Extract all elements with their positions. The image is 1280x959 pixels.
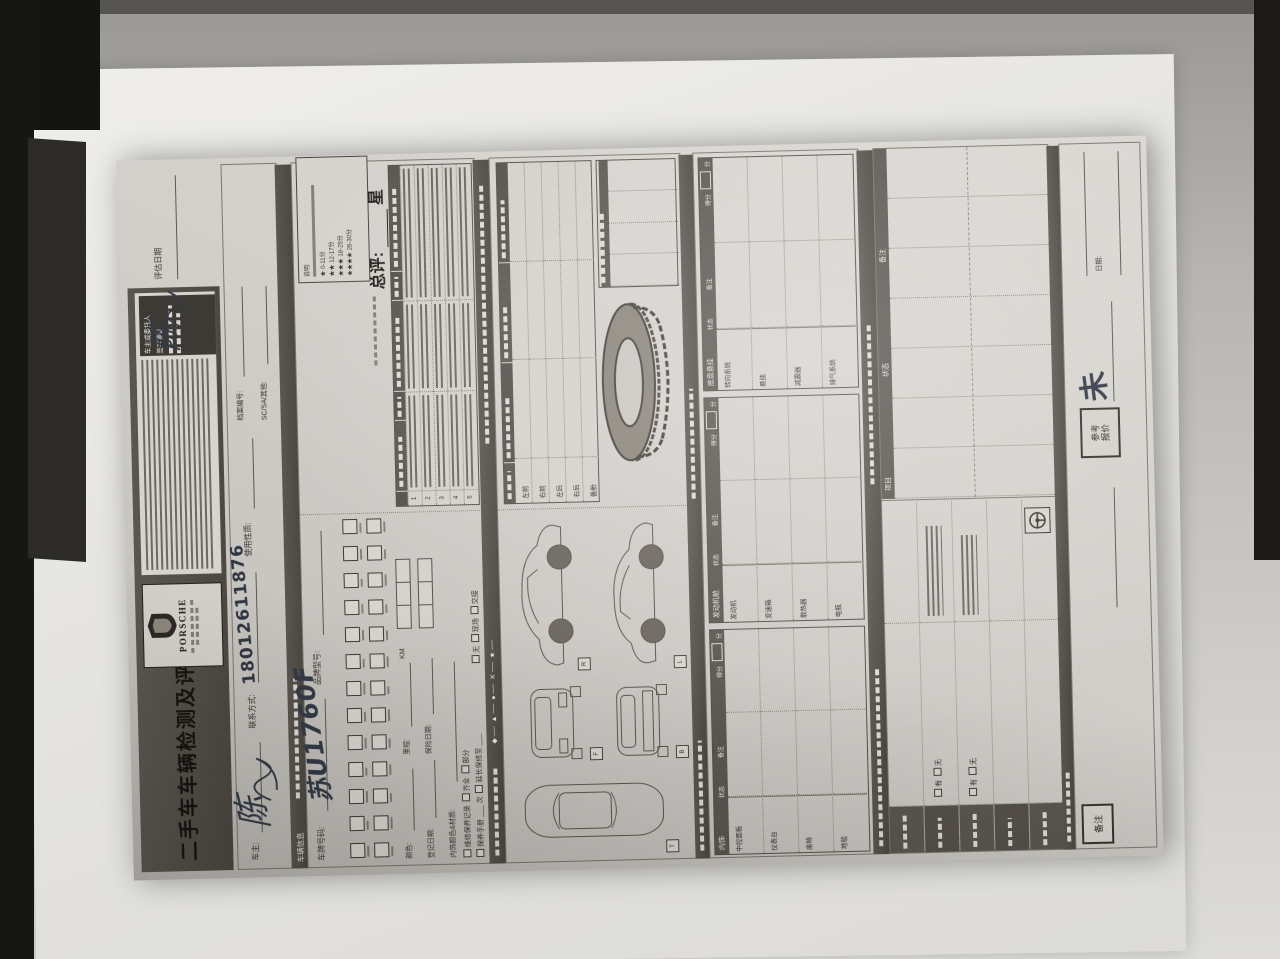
mechanical-block: 内饰 状态 备注 得分 分 中控面板 仪表台 座椅 地毯 发动机舱 状态 备注 bbox=[692, 149, 875, 859]
view-tag-f: F bbox=[590, 747, 603, 760]
car-top-view[interactable] bbox=[519, 772, 671, 848]
header-band: 二手车车辆检测及评估表 PORSCHE 车主或委托人 签字确认 bbox=[127, 286, 233, 872]
tire-illustration bbox=[597, 296, 683, 468]
porsche-wordmark: PORSCHE bbox=[177, 584, 189, 666]
star-legend-box: 说明: ★ 0-11分 ★★ 12-17分 ★★★ 18-25分 ★★★★ 26… bbox=[295, 156, 370, 284]
not-yet-handwriting: 未 bbox=[1068, 368, 1116, 404]
inspection-form-paper: 二手车车辆检测及评估表 PORSCHE 车主或委托人 签字确认 bbox=[116, 136, 1163, 881]
porsche-crest-icon bbox=[143, 584, 179, 667]
car-side-view-right[interactable] bbox=[508, 517, 578, 675]
records-table: 项目 状态 备注 bbox=[873, 145, 1055, 499]
documents-checkbox-row-2[interactable] bbox=[366, 518, 389, 857]
color-label: 颜色: bbox=[404, 843, 414, 859]
legend-row-4: ★★★★ 26-30分 bbox=[342, 162, 354, 276]
owner-signature-scribble bbox=[240, 752, 285, 805]
vehicle-info-block: 车牌号码: 品牌型号: 苏U1760F bbox=[290, 158, 491, 868]
footer-block: 备注 参考报价 未 日期: bbox=[1058, 142, 1157, 850]
background-top-edge bbox=[0, 0, 1280, 14]
key-count-cells-1 bbox=[395, 559, 417, 629]
terms-signature-scribble bbox=[153, 285, 194, 332]
roadtest-table: 有 无 有 无 bbox=[882, 499, 1064, 853]
background-dark-right-edge bbox=[1254, 0, 1280, 560]
remarks-box: 备注 bbox=[1081, 804, 1114, 845]
insurance-date-label: 保险日期: bbox=[423, 724, 434, 754]
car-side-view-left[interactable] bbox=[600, 514, 670, 672]
car-rear-view[interactable] bbox=[602, 680, 672, 762]
score-table: 1 2 3 4 bbox=[388, 163, 480, 507]
view-tag-r: R bbox=[578, 657, 591, 670]
roadtest-yes-no-1[interactable]: 有 无 bbox=[920, 622, 958, 806]
signature-line-2[interactable] bbox=[1117, 151, 1121, 275]
register-date-label: 登记日期: bbox=[426, 828, 437, 858]
body-tire-block: T F B R bbox=[488, 153, 697, 863]
background-dark-object bbox=[28, 138, 86, 562]
key-count-cells-2 bbox=[417, 558, 439, 628]
owner-label: 车主: bbox=[250, 842, 261, 860]
steering-wheel-box bbox=[1024, 507, 1051, 534]
manual-options[interactable]: 保养手册 ___ 次 延长保修至 ___ bbox=[473, 734, 486, 857]
eval-date-label: 评估日期 bbox=[152, 248, 164, 280]
vehicle-section-label: 车辆信息 bbox=[295, 832, 307, 862]
eval-date-line[interactable] bbox=[175, 175, 179, 279]
chassis-table: 底盘悬挂 状态 备注 得分 分 转向系统 悬挂 减震器 排气系统 bbox=[697, 154, 859, 392]
file-no-label: 档案编号: bbox=[235, 391, 246, 421]
engine-bay-table: 发动机舱 状态 备注 得分 分 发动机 变速箱 散热器 电瓶 bbox=[703, 394, 864, 624]
sc-sa-label: SC/SA/其他: bbox=[259, 381, 270, 420]
overall-rating: 总评: 星 bbox=[362, 189, 389, 290]
signature-line-1[interactable] bbox=[1083, 152, 1087, 276]
photo-scene: { "page": { "title": "二手车车辆检测及评估表", "bra… bbox=[0, 0, 1280, 959]
plate-label: 车牌号码: bbox=[316, 827, 328, 861]
car-front-view[interactable] bbox=[516, 682, 586, 764]
view-tag-l: L bbox=[674, 655, 687, 668]
tire-table: 左前 右前 左后 右后 备胎 bbox=[496, 160, 600, 504]
reference-price-box: 参考报价 bbox=[1080, 407, 1121, 458]
steering-wheel-icon bbox=[1028, 511, 1046, 529]
porsche-logo-box: PORSCHE bbox=[142, 582, 224, 668]
handover-options[interactable]: 无 现场 交接 bbox=[470, 590, 482, 663]
damage-symbols-legend: ◆ ── ▲ ── ● ── ✕ ── ★ ── bbox=[488, 640, 499, 744]
mileage-unit: KM bbox=[399, 648, 406, 659]
interior-table: 内饰 状态 备注 得分 分 中控面板 仪表台 座椅 地毯 bbox=[709, 626, 870, 856]
date-label: 日期: bbox=[1094, 256, 1104, 272]
wheel-notes-grid bbox=[595, 158, 678, 288]
contact-label: 联系方式: bbox=[246, 694, 258, 728]
roadtest-records-block: 有 无 有 无 bbox=[872, 144, 1065, 854]
documents-checkbox-row-1[interactable] bbox=[342, 519, 365, 858]
maintenance-options[interactable]: 维修保养记录 齐全 部分 bbox=[461, 749, 474, 857]
phone-handwriting: 18012611876 bbox=[227, 543, 260, 685]
interior-label: 内饰颜色&材质: bbox=[447, 809, 458, 858]
roadtest-yes-no-2[interactable]: 有 无 bbox=[955, 622, 993, 806]
view-tag-b: B bbox=[676, 745, 689, 758]
mileage-label: 里程: bbox=[402, 739, 412, 755]
legend-title: 说明: bbox=[299, 163, 311, 277]
